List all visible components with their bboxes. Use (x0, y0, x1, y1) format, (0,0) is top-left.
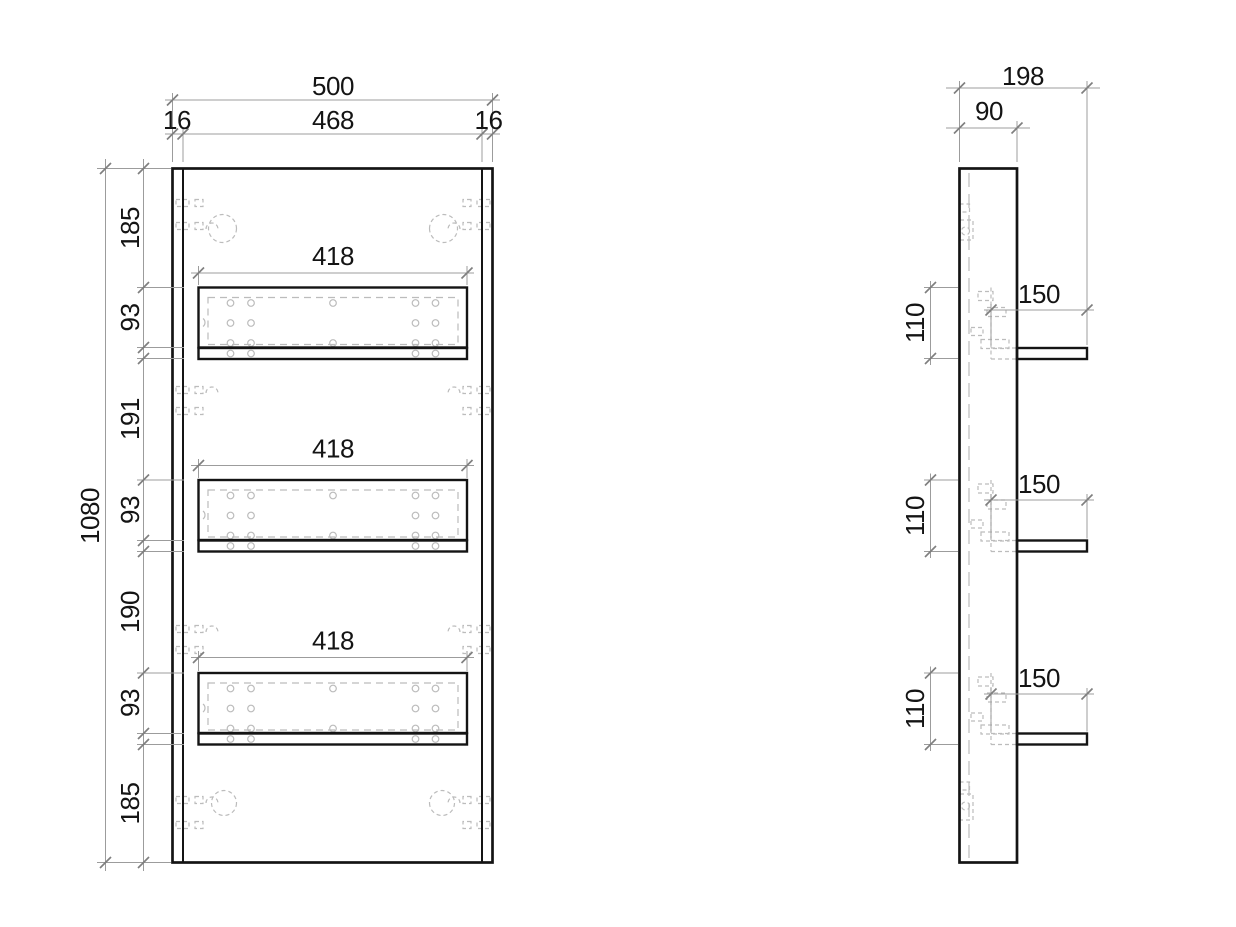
side-hidden-details (960, 173, 974, 858)
dim-label-segment-6: 93 (115, 689, 145, 717)
dim-label-segment-1: 185 (115, 207, 145, 249)
dim-label-segment-5: 190 (115, 591, 145, 633)
dim-label-shelf2-height: 110 (900, 496, 930, 536)
dim-label-segment-4: 93 (115, 496, 145, 524)
dim-label-side-overall-depth: 198 (1002, 61, 1044, 91)
side-view: 198 90 150 150 150 (900, 61, 1100, 863)
side-dim-shelf-heights: 110 110 110 (900, 281, 958, 751)
dim-label-shelf3-width: 418 (312, 626, 354, 656)
dim-label-shelf1-height: 110 (900, 303, 930, 343)
dim-label-shelf1-width: 418 (312, 241, 354, 271)
dim-label-front-overall-height: 1080 (75, 488, 105, 544)
front-dim-height-chain: 185 93 191 93 190 93 185 1080 (75, 159, 184, 871)
dim-label-shelf3-depth: 150 (1018, 663, 1060, 693)
side-panel-outline (960, 169, 1018, 863)
front-shelf-1 (199, 288, 468, 360)
dim-label-shelf1-depth: 150 (1018, 279, 1060, 309)
dim-label-shelf2-width: 418 (312, 434, 354, 464)
technical-drawing-canvas: 500 16 468 16 418 418 418 (0, 0, 1236, 927)
dim-label-front-overall-width: 500 (312, 71, 354, 101)
dim-label-shelf2-depth: 150 (1018, 469, 1060, 499)
dim-label-front-inner-width: 468 (312, 105, 354, 135)
front-shelf-2 (199, 480, 468, 552)
dim-label-shelf3-height: 110 (900, 689, 930, 729)
shelf-unit-drawing: 500 16 468 16 418 418 418 (0, 0, 1236, 927)
front-shelf-3 (199, 673, 468, 745)
front-dim-width: 500 16 468 16 (163, 71, 502, 162)
dim-label-segment-3: 191 (115, 398, 145, 440)
dim-label-front-side-left: 16 (163, 105, 191, 135)
dim-label-front-side-right: 16 (475, 105, 503, 135)
dim-label-side-panel-depth: 90 (975, 96, 1003, 126)
dim-label-segment-2: 93 (115, 304, 145, 332)
dim-label-segment-7: 185 (115, 783, 145, 825)
front-view: 500 16 468 16 418 418 418 (75, 71, 502, 871)
